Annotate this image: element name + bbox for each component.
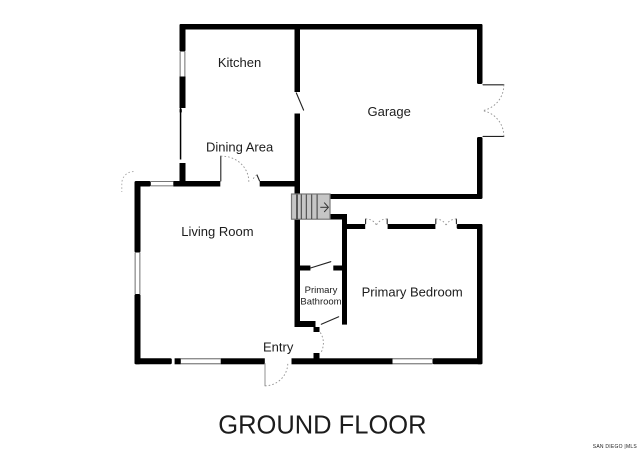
svg-text:Bathroom: Bathroom [300, 296, 341, 307]
svg-text:Garage: Garage [368, 104, 411, 119]
svg-text:Primary Bedroom: Primary Bedroom [362, 285, 463, 300]
svg-text:SAN DIEGO |MLS: SAN DIEGO |MLS [593, 444, 638, 450]
svg-text:Kitchen: Kitchen [218, 55, 261, 70]
svg-text:Primary: Primary [305, 285, 338, 296]
svg-text:GROUND FLOOR: GROUND FLOOR [218, 412, 426, 440]
svg-text:Living Room: Living Room [181, 224, 253, 239]
svg-text:Entry: Entry [263, 340, 294, 355]
svg-text:Dining Area: Dining Area [206, 140, 274, 155]
